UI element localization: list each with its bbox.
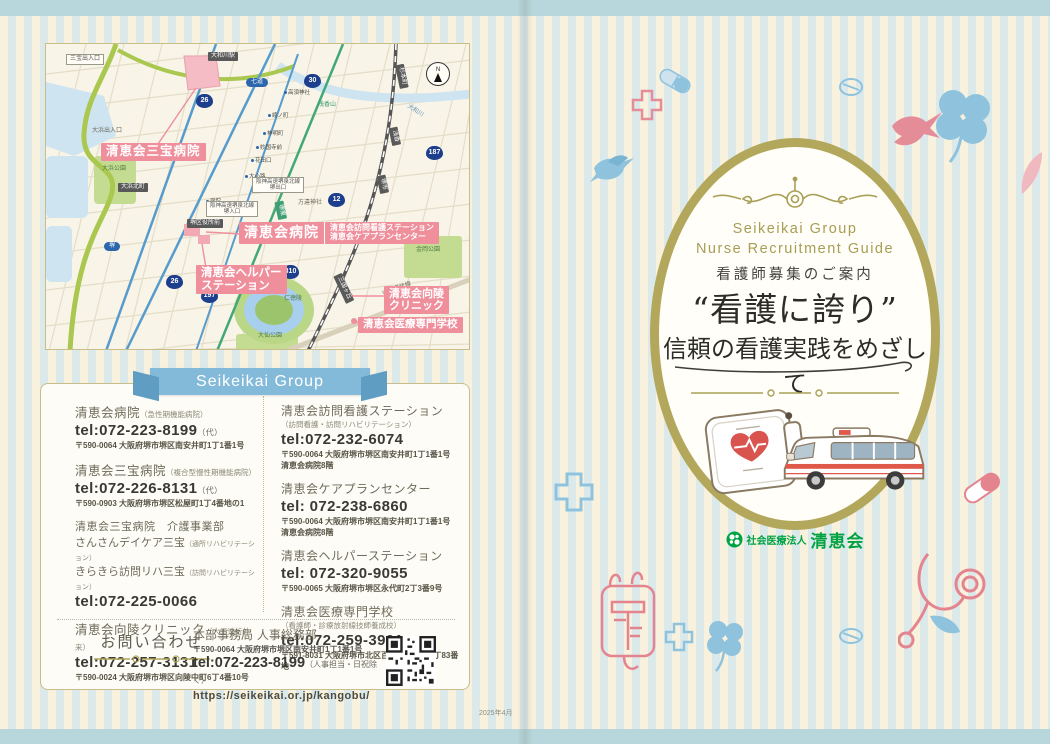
facility-address: 〒590-0064 大阪府堺市堺区南安井町1丁1番1号	[75, 440, 257, 451]
flourish-ornament	[659, 175, 931, 217]
map-facility-main-side: 清恵会訪問看護ステーション 清恵会ケアプランセンター	[325, 222, 439, 244]
blood-bag-icon	[580, 558, 670, 678]
map-facility-careplan: 清恵会ケアプランセンター	[330, 233, 434, 242]
contacts-panel: 清恵会病院（急性期機能病院） tel:072-223-8199（代） 〒590-…	[40, 383, 470, 690]
facility-name: 清恵会三宝病院	[75, 463, 166, 478]
facility-tel: tel:072-223-8199	[75, 422, 197, 439]
facility-service: さんさんデイケア三宝	[75, 536, 185, 549]
feather-blue-icon	[928, 612, 962, 642]
clover-icon	[928, 86, 998, 166]
ambulance-illustration	[777, 415, 932, 510]
route-badge-12: 12	[328, 193, 345, 207]
map-label-ohama-ic: 大浜出入口	[92, 128, 122, 135]
facility-tel: tel:072-232-6074	[281, 431, 463, 448]
cross-blue-icon	[552, 470, 596, 514]
facility-name: 清恵会ケアプランセンター	[281, 480, 463, 497]
clover-small-icon	[702, 618, 748, 674]
cross-small-icon	[664, 622, 694, 652]
compass-icon: N	[426, 62, 450, 86]
map-tram-shinmeicho: 神明町	[263, 131, 284, 137]
facility-name: 清恵会病院	[75, 405, 140, 420]
map-facility-koryo-l2: クリニック	[389, 300, 444, 312]
map-facility-helper-l1: 清恵会ヘルパー	[201, 267, 282, 280]
map-station-yamatogawa: 大和川駅	[208, 52, 238, 61]
facility-tel: tel: 072-320-9055	[281, 565, 463, 582]
map-station-ohamakitamachi: 大浜北町	[118, 183, 148, 192]
map-tram-ayanocho: 綾ノ町	[268, 113, 289, 119]
capsule-pink-icon	[960, 468, 1004, 507]
map-facility-helper: 清恵会ヘルパー ステーション	[196, 265, 287, 294]
highway-exit-line2: 堺出口	[256, 185, 300, 191]
group-ribbon: Seikeikai Group	[150, 368, 370, 395]
access-map: 三宝出入口 大和川駅 七道 堺 浅香山 大浜出入口 大浜北町 大浜公園 堺区役所…	[45, 43, 470, 350]
contact-entry: 清恵会ヘルパーステーション tel: 072-320-9055 〒590-006…	[281, 547, 463, 594]
org-type-label: 社会医療法人	[747, 532, 807, 547]
tagline-swash	[659, 359, 931, 377]
inquiry-url: https://seikeikai.or.jp/kangobu/	[193, 690, 388, 702]
route-badge-30: 30	[304, 74, 321, 88]
map-facility-koryo-l1: 清恵会向陵	[389, 288, 444, 300]
column-divider	[263, 396, 264, 612]
cover-en-line1: Seikeikai Group	[659, 221, 931, 237]
map-station-shichido: 七道	[246, 78, 268, 87]
inquiry-department: 本部事務局 人事総務部	[193, 626, 388, 643]
route-badge-187: 187	[426, 146, 443, 160]
route-badge-26b: 26	[166, 275, 183, 289]
map-facility-main-group: 清恵会病院 清恵会訪問看護ステーション 清恵会ケアプランセンター	[239, 222, 439, 244]
seikeikai-logo-icon	[726, 531, 743, 548]
map-tram-takasujinja: 高須神社	[284, 90, 310, 96]
contact-entry: 清恵会訪問看護ステーション （訪問看護・訪問リハビリテーション） tel:072…	[281, 402, 463, 471]
map-label-daisen-park: 大仙公園	[258, 333, 282, 340]
facility-address2: 清恵会病院8階	[281, 460, 463, 471]
inquiry-block: 本部事務局 人事総務部 〒590-0064 大阪府堺市堺区南安井町1丁1番1号 …	[193, 626, 388, 702]
contact-entry: 清恵会三宝病院（複合型慢性期機能病院） tel:072-226-8131（代） …	[75, 460, 257, 509]
facility-tel-note: （代）	[197, 486, 222, 495]
medical-cross-icon	[630, 88, 664, 122]
issue-date: 2025年4月	[479, 708, 512, 718]
map-facility-main: 清恵会病院	[239, 222, 325, 244]
map-label-hochigai: 方違神社	[298, 200, 322, 207]
facility-service: きらきら訪問リハ三宝	[75, 565, 185, 578]
contact-entry: 清恵会三宝病院 介護事業部 さんさんデイケア三宝（通所リハビリテーション） きら…	[75, 518, 257, 610]
facility-address: 〒590-0064 大阪府堺市堺区南安井町1丁1番1号	[281, 449, 463, 460]
map-label-asakayama: 浅香山	[318, 102, 336, 109]
facility-note: （複合型慢性期機能病院）	[166, 468, 256, 477]
map-station-kuyakushomae: 堺区役所前	[187, 219, 223, 228]
inquiry-address: 〒590-0064 大阪府堺市堺区南安井町1丁1番1号	[193, 644, 388, 655]
facility-tel: tel:072-226-8131	[75, 480, 197, 497]
facility-name: 清恵会ヘルパーステーション	[281, 547, 463, 564]
map-station-sakai: 堺	[104, 242, 120, 251]
facility-name: 清恵会医療専門学校	[281, 603, 463, 620]
facility-name: 清恵会三宝病院 介護事業部	[75, 518, 257, 534]
brochure-spread: 三宝出入口 大和川駅 七道 堺 浅香山 大浜出入口 大浜北町 大浜公園 堺区役所…	[0, 0, 1050, 744]
facility-address: 〒590-0903 大阪府堺市堺区松屋町1丁4番地の1	[75, 498, 257, 509]
map-label-nintoku: 仁徳陵	[284, 296, 302, 303]
map-tram-hanataguchi: 花田口	[251, 158, 272, 164]
facility-note: （急性期機能病院）	[140, 410, 208, 419]
qr-code	[386, 636, 436, 686]
facility-name: 清恵会訪問看護ステーション	[281, 402, 463, 419]
facility-tel: tel:072-225-0066	[75, 593, 257, 610]
cover-en-line2: Nurse Recruitment Guide	[659, 241, 931, 257]
org-logo-row: 社会医療法人 清恵会	[659, 527, 931, 552]
dove-icon	[588, 148, 636, 184]
feather-pink-icon	[1018, 150, 1048, 196]
map-facility-helper-l2: ステーション	[201, 280, 282, 293]
pill-small-icon	[838, 626, 864, 646]
cover-subtitle: 看護師募集のご案内	[659, 263, 931, 284]
contact-entry: 清恵会病院（急性期機能病院） tel:072-223-8199（代） 〒590-…	[75, 402, 257, 451]
org-name-label: 清恵会	[811, 527, 865, 552]
facility-note: （訪問看護・訪問リハビリテーション）	[281, 419, 463, 430]
facility-tel-note: （代）	[197, 428, 222, 437]
map-label-highway-exit: 阪神高速堺泉北線 堺出口	[252, 177, 304, 193]
map-facility-school: 清恵会医療専門学校	[358, 317, 463, 333]
cover-title: “看護に誇り”	[659, 283, 931, 331]
facility-address: 〒590-0065 大阪府堺市堺区永代町2丁3番9号	[281, 583, 463, 594]
highway-ent-line2: 堺入口	[210, 209, 254, 215]
fold-shadow	[517, 0, 533, 744]
map-label-sanbo-ic: 三宝出入口	[66, 54, 104, 65]
section-divider-ornament	[659, 387, 931, 399]
map-label-ohama-park: 大浜公園	[102, 166, 126, 173]
map-tram-myokokujimae: 妙国寺前	[256, 145, 282, 151]
route-badge-26: 26	[196, 94, 213, 108]
facility-address: 〒590-0064 大阪府堺市堺区南安井町1丁1番1号	[281, 516, 463, 527]
map-facility-sanbo: 清恵会三宝病院	[101, 143, 206, 161]
pill-icon	[838, 76, 864, 98]
facility-tel: tel: 072-238-6860	[281, 498, 463, 515]
map-label-highway-ent: 阪神高速堺泉北線 堺入口	[206, 201, 258, 217]
facility-address2: 清恵会病院8階	[281, 527, 463, 538]
inquiry-tel: tel:072-223-8199	[193, 655, 305, 671]
map-label-kanaoka-park: 金岡公園	[416, 247, 440, 254]
map-facility-koryo: 清恵会向陵 クリニック	[384, 286, 449, 314]
contact-entry: 清恵会ケアプランセンター tel: 072-238-6860 〒590-0064…	[281, 480, 463, 538]
cover-oval-frame: Seikeikai Group Nurse Recruitment Guide …	[650, 138, 940, 530]
